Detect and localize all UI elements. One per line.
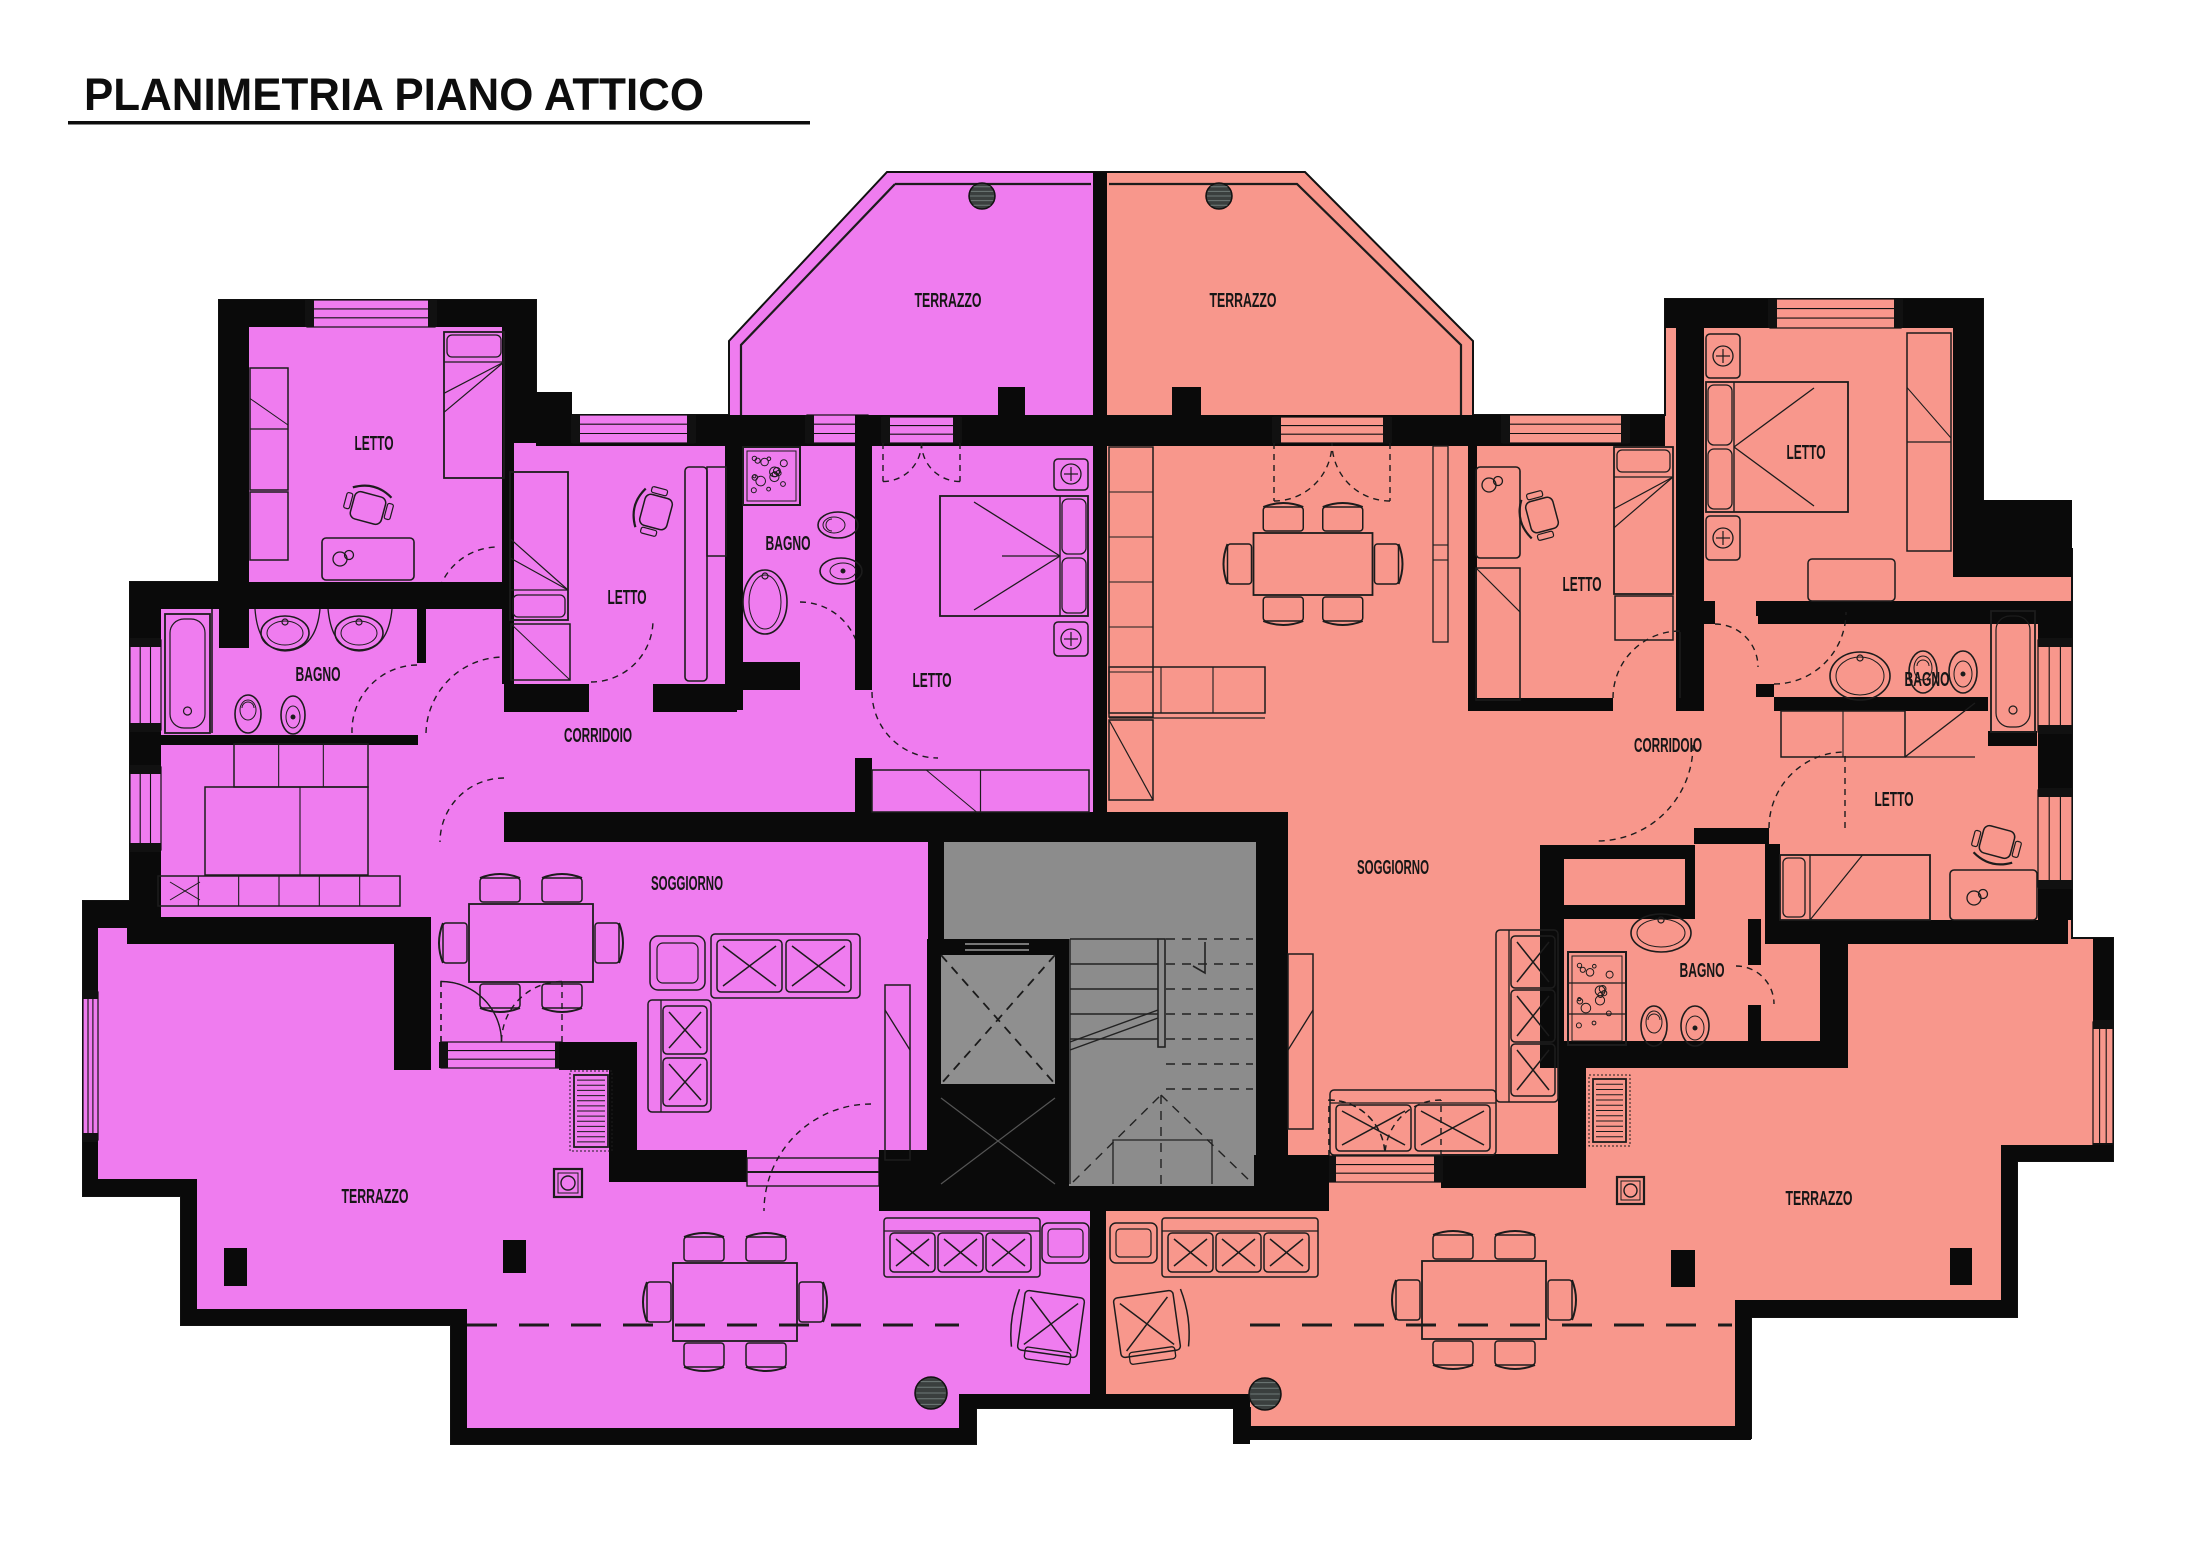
svg-text:LETTO: LETTO <box>1875 789 1914 811</box>
svg-text:TERRAZZO: TERRAZZO <box>342 1186 409 1208</box>
svg-text:LETTO: LETTO <box>355 433 394 455</box>
svg-text:LETTO: LETTO <box>913 670 952 692</box>
svg-text:PLANIMETRIA PIANO ATTICO: PLANIMETRIA PIANO ATTICO <box>84 69 704 120</box>
svg-text:LETTO: LETTO <box>1787 442 1826 464</box>
svg-text:TERRAZZO: TERRAZZO <box>1786 1188 1853 1210</box>
svg-text:CORRIDOIO: CORRIDOIO <box>564 725 632 747</box>
svg-text:SOGGIORNO: SOGGIORNO <box>651 873 723 895</box>
svg-text:BAGNO: BAGNO <box>1905 669 1950 691</box>
svg-text:BAGNO: BAGNO <box>296 664 341 686</box>
svg-text:SOGGIORNO: SOGGIORNO <box>1357 857 1429 879</box>
svg-text:CORRIDOIO: CORRIDOIO <box>1634 735 1702 757</box>
svg-text:LETTO: LETTO <box>1563 574 1602 596</box>
svg-text:TERRAZZO: TERRAZZO <box>1210 290 1277 312</box>
svg-text:LETTO: LETTO <box>608 587 647 609</box>
svg-text:BAGNO: BAGNO <box>1680 960 1725 982</box>
svg-text:TERRAZZO: TERRAZZO <box>915 290 982 312</box>
svg-text:BAGNO: BAGNO <box>766 533 811 555</box>
